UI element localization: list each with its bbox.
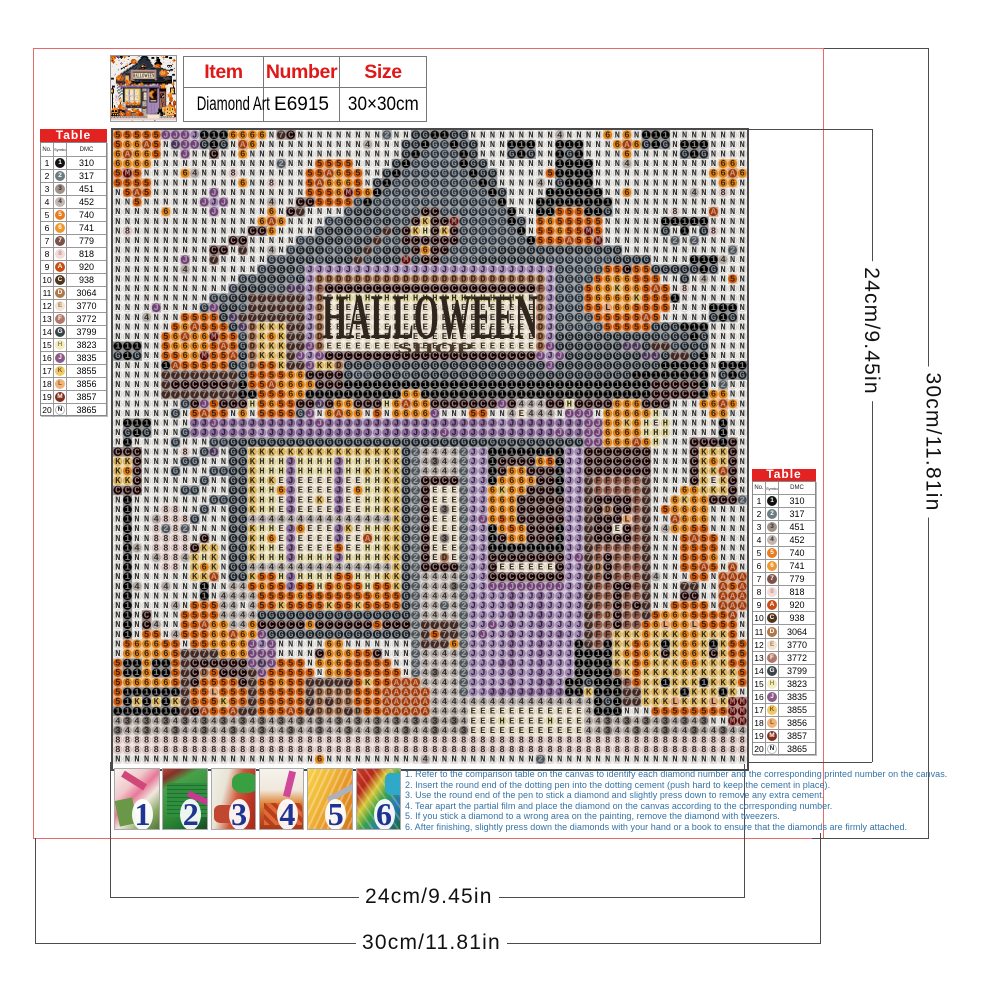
svg-text:CC GGGGGGGG7GGCCCCCCGGGGGG: CC GGGGGGGG7GGCCCCCCGGGGGGG1 A M 2 2 xyxy=(115,236,701,246)
svg-text:1 C GGGGGGGGGGGGGGGG: 1 C GGGGGGGGGGGGGGGG2 2 7 C 7 A xyxy=(115,611,739,621)
svg-text:C G GG G2: C G GG G2CCCC2 1 CC1 7 7 C C xyxy=(115,476,739,486)
svg-text:G1G G: G1G G J J JJ 1 xyxy=(115,428,730,438)
svg-text:7777 JJJ C C 2 2: 7777 JJJ C C 2 2 1111 C C xyxy=(115,649,720,659)
svg-text:SHOP: SHOP xyxy=(397,341,473,357)
svg-text:344344344344344344344344344344: 3443443443443443443443443443443443443EEE… xyxy=(115,726,747,736)
svg-text:C GG GG G2: C GG GG G2 2 1CCCC 1 CCCCCCC C C xyxy=(115,457,739,467)
svg-text:GGGGG: GGGGG GGGGG C GGGGG1G xyxy=(115,265,720,275)
svg-text:1 A GG G: 1 A GG G2 2 CCCCCCCC 7 C 7 AAA xyxy=(115,572,747,582)
svg-text:J C7 GGGGGGGGCCGGGGGG: J C7 GGGGGGGGCCGGGGGGG1 11 11G A xyxy=(115,207,720,217)
svg-text:A G1GGGGGGGGG1G G111: A G1GGGGGGGGG1G G111 xyxy=(115,178,595,188)
svg-text:1 G: 1 G2 2 2 7 C C7 AAA xyxy=(115,601,747,611)
svg-text:1 C GG A G: 1 C GG A G2C 2 1C CCC1 7CCCC 7 A xyxy=(115,534,701,544)
svg-text:MM: MM xyxy=(115,716,747,726)
svg-text:7777777711 1111111111 111: 7777777711 1111111111 111111111111111111… xyxy=(115,390,711,400)
svg-text:1 G GG G: 1 G GG G2C 2 CCCCC 7C CC 7 xyxy=(115,505,653,515)
svg-text:A JJJG1G A GG1: A JJJG1G A GG1GG1GG 111 111 A G1G 111 xyxy=(115,140,711,150)
svg-text:GCJ CCC CCJC CCC A CCCC: GCJ CCC CCJC CCC A CCCCCCCJC CC CCCC CCC… xyxy=(115,399,730,409)
svg-text:888888888888888888888888888888: 8888888888888888888888888888888888888888… xyxy=(115,745,747,755)
svg-text:CC 7 GGGGGGGG7GGGGC CCGGGGG: CC 7 GGGGGGGG7GGGGC CCGGGGGGGGGGGGGGGGGG… xyxy=(115,246,739,256)
svg-text:HALLOWEEN: HALLOWEEN xyxy=(133,72,155,79)
svg-text:1 A JGGGGGGGGGGGGGGG: 1 A JGGGGGGGGGGGGGGG27 772 J 7 xyxy=(115,630,595,640)
svg-text:1 G GG G: 1 G GG G2C 2 J CCCCC 7CCC 7 A xyxy=(115,515,682,525)
svg-text:M A G1G: M A G1GGGGGGG1GG 1111 A xyxy=(115,169,739,179)
svg-text:1 C A CCCCC CCCCCC CCC: 1 C A CCCCC CCCCCC CCC277772 J 7 C xyxy=(115,620,624,630)
svg-text:1 C GG G: 1 C GG G2C 2 11111111 7 7 xyxy=(115,543,653,553)
svg-text:2: 2 xyxy=(115,755,547,764)
svg-text:A J C G: A J C G1GGGG1G G1G 1G1 G1G xyxy=(115,150,711,160)
svg-text:11 11 7CCCCCCJJJ: 11 11 7CCCCCCJJJ 2 2 1111 xyxy=(115,659,615,669)
svg-text:A GGGGGGGGGC CCMGGGGG1G: A GGGGGGGGGC CCMGGGGG1G 11111 xyxy=(115,217,711,227)
svg-text:1 GGGG G: 1 GGGG G2C 2 CCCCC 7CCCC 7 CCC2 xyxy=(115,495,747,505)
svg-text:1 GG G: 1 GG G2C 2 CCCCCCCC J7 C 7 xyxy=(115,553,653,563)
svg-text:C G GGGG G2: C G GGGG G2 2 1C CCC1 CCCCCCC C AC xyxy=(115,467,739,477)
svg-text:1A GG 77J GGGGGGGGGGG: 1A GG 77J GGGGGGGGGGGGGGGGGGGGGJGGGGGGGG… xyxy=(115,361,747,371)
svg-text:2 G1GGGGG1GG 1: 2 G1GGGGG1GG 1111 xyxy=(115,159,595,169)
svg-text:1 2 2 GG G: 1 2 2 GG G2C 2 1 CCC1 7CC C 7 xyxy=(115,524,653,534)
svg-text:11111117CA A77 A 7 7 AA: 11111117CA A77 A 7 7 AAAAA 111 MM xyxy=(115,707,747,717)
svg-text:J 7 GGGGGGGGG7GGGGMGCCGGG: J 7 GGGGGGGGG7GGGGMGCCGGGGGGGGGGGGGGGGGG… xyxy=(115,255,720,265)
svg-text:J J 2777 2: J J 2777 2 17 1 1 1 xyxy=(115,639,720,649)
svg-text:888888888888888888888888888888: 8888888888888888888888888888888888888888… xyxy=(115,736,747,746)
svg-text:111 J J: 111 J J JJ 1 xyxy=(115,419,730,429)
svg-text:A J M 1GGGG: A J M 1GGGGGGGGGGG1G 111111 xyxy=(115,188,605,198)
svg-text:1 G GGGGGGGGGGGGGGGGGGGGG: 1 G GGGGGGGGGGGGGGGGGGGGGGGGGGGGGGGGGGGG… xyxy=(115,438,739,448)
svg-text:CCC GG GG: CCC GG GG G2C 2 CCC1 7 7 C xyxy=(115,486,739,496)
svg-text:7C C7 77777 AAA 2: 7C C7 77777 AAA 2 11G111 1 1 xyxy=(115,678,711,688)
svg-text:G A GJ A J: G A GJ A J JJJ xyxy=(115,409,595,419)
svg-text:1 GG G: 1 GG G2CCCC2 C C 7 C 7 A A xyxy=(115,563,739,573)
svg-text:JJJ 111 7C 2 GG11: JJJ 111 7C 2 GG11GG 111 xyxy=(115,130,672,140)
svg-text:CCC GJ GG: CCC GJ GG G2 2 11111111 CCCCCCC C C xyxy=(115,447,739,457)
svg-text:11 11 7C CCC7J: 11 11 7C CCC7J 2 2 1111 xyxy=(115,668,615,678)
svg-text:1 1 G: 1 1 G2 2 7 C 7 CC AAA xyxy=(115,591,747,601)
svg-text:CC GGGGGGG7GC C CGGGGGG1: CC GGGGGGG7GC C CGGGGGG1 M G 1 G xyxy=(115,226,711,236)
svg-text:7CCCCCC71 A CCC11111111111: 7CCCCCC71 A CCC1111111111111111111111111… xyxy=(115,380,730,390)
svg-text:77777777G CCCCGGGGGGGGGGG: 77777777G CCCCGGGGGGGGGGGGGGGGGGGGGGGGGG… xyxy=(115,371,747,381)
svg-text:1111117 7 7 AAA: 1111117 7 7 AAAAA 2 11 11177 1 1 xyxy=(115,688,730,698)
svg-text:1 1 1 7 7 7 7 AAA: 1 1 1 7 7 7 7 AAAAA 1G177 MM xyxy=(115,697,747,707)
svg-text:1 1 G: 1 1 G2 2 JJJJJJJJ 7 CC 7 77 A A xyxy=(115,582,747,592)
svg-text:J J CC G1GGGGGGGGGGGG: J J CC G1GGGGGGGGGGGGG1 11111111 xyxy=(115,198,615,208)
